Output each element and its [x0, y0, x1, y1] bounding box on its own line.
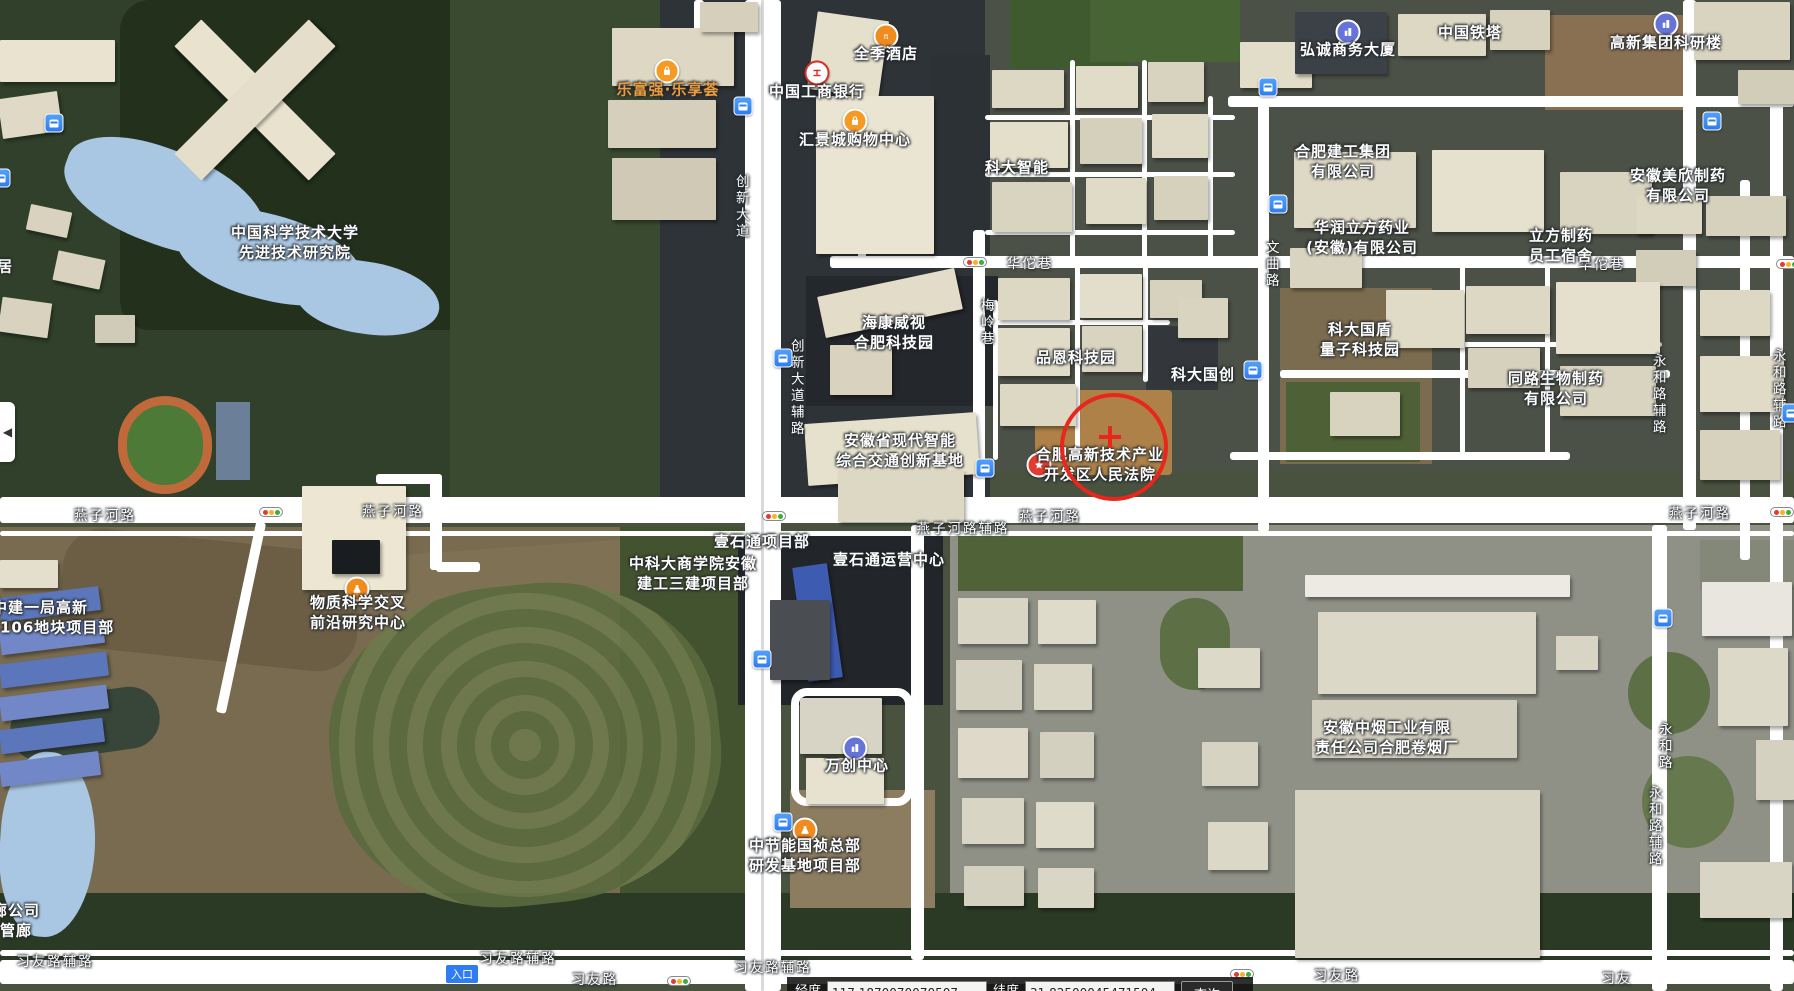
poi-label[interactable]: 合肥建工集团 有限公司	[1295, 143, 1391, 182]
crosshair-icon	[1099, 426, 1121, 448]
query-button[interactable]: 查询	[1181, 981, 1233, 991]
road-label: 华佗巷	[1007, 256, 1054, 274]
road-label: 习友路辅路	[734, 960, 812, 978]
poi-label[interactable]: 华润立方药业 (安徽)有限公司	[1306, 219, 1418, 258]
coordinate-bar: 经度 纬度 查询	[787, 977, 1253, 991]
entrance-badge: 入口	[445, 964, 479, 984]
bus-stop-icon[interactable]	[734, 97, 753, 116]
latitude-label: 纬度	[993, 981, 1019, 991]
poi-label[interactable]: 安徽省现代智能 综合交通创新基地	[836, 432, 964, 471]
poi-label[interactable]: 居	[0, 257, 13, 277]
poi-label[interactable]: 廊公司 管廊	[0, 902, 40, 941]
collapse-arrow-icon: ◀	[3, 425, 12, 439]
poi-label[interactable]: 壹石通运营中心	[833, 550, 945, 570]
poi-label[interactable]: 同路生物制药 有限公司	[1508, 370, 1604, 409]
road-label: 永和路辅路	[1648, 354, 1666, 437]
traffic-light-icon	[963, 257, 987, 267]
bus-stop-icon[interactable]	[774, 813, 793, 832]
poi-label[interactable]: 万创中心	[825, 756, 889, 776]
poi-label[interactable]: 乐富强·乐享荟	[617, 80, 720, 100]
bus-stop-icon[interactable]	[1703, 112, 1722, 131]
panel-collapse-tab[interactable]: ◀	[0, 402, 15, 462]
road-label: 习友	[1602, 971, 1633, 989]
road-label: 习友路辅路	[16, 954, 94, 972]
road-label: 永和路	[1654, 722, 1672, 772]
road-label: 习友路	[572, 972, 619, 990]
svg-text:π: π	[884, 32, 889, 41]
road-label: 燕子河路	[1019, 509, 1081, 527]
bus-stop-icon[interactable]	[0, 169, 11, 188]
bus-stop-icon[interactable]	[45, 114, 64, 133]
poi-label[interactable]: 科大智能	[985, 158, 1049, 178]
road-label: 永和路辅路	[1644, 786, 1662, 869]
poi-label[interactable]: 海康威视 合肥科技园	[854, 314, 934, 353]
bus-stop-icon[interactable]	[1269, 195, 1288, 214]
poi-label[interactable]: 中节能国祯总部 研发基地项目部	[749, 837, 861, 876]
poi-label[interactable]: 壹石通项目部	[714, 532, 810, 552]
longitude-label: 经度	[795, 981, 821, 991]
satellite-map[interactable]: 中国科学技术大学 先进技术研究院乐富强·乐享荟π全季酒店中国工商银行汇景城购物中…	[0, 0, 1794, 991]
road-label: 习友路	[1314, 968, 1361, 986]
poi-label[interactable]: 中国工商银行	[769, 82, 865, 102]
bus-stop-icon[interactable]	[774, 349, 793, 368]
road-label: 习友路辅路	[479, 951, 557, 969]
poi-label[interactable]: 中科大商学院安徽 建工三建项目部	[629, 555, 757, 594]
road-label: 燕子河路	[362, 504, 424, 522]
bus-stop-icon[interactable]	[1259, 78, 1278, 97]
poi-label[interactable]: 汇景城购物中心	[799, 130, 911, 150]
poi-label[interactable]: 中国科学技术大学 先进技术研究院	[231, 224, 359, 263]
poi-label[interactable]: 科大国创	[1171, 365, 1235, 385]
bus-stop-icon[interactable]	[1654, 609, 1673, 628]
poi-label[interactable]: 立方制药 员工宿舍	[1529, 227, 1593, 266]
bus-stop-icon[interactable]	[976, 459, 995, 478]
traffic-light-icon	[667, 976, 691, 986]
poi-label[interactable]: 弘诚商务大厦	[1300, 40, 1396, 60]
road-label: 燕子河路	[74, 508, 136, 526]
bus-stop-icon[interactable]	[1782, 404, 1794, 423]
poi-label[interactable]: 科大国盾 量子科技园	[1320, 321, 1400, 360]
bus-stop-icon[interactable]	[753, 650, 772, 669]
poi-label[interactable]: 全季酒店	[854, 44, 918, 64]
road-label: 梅岭巷	[976, 298, 994, 348]
poi-label[interactable]: 品恩科技园	[1036, 348, 1116, 368]
poi-label[interactable]: 安徽中烟工业有限 责任公司合肥卷烟厂	[1315, 719, 1459, 758]
road-label: 文曲路	[1261, 240, 1279, 290]
longitude-input[interactable]	[827, 981, 987, 991]
latitude-input[interactable]	[1025, 981, 1175, 991]
poi-label[interactable]: 高新集团科研楼	[1610, 33, 1722, 53]
poi-label[interactable]: 中建一局高新 202106地块项目部	[0, 599, 114, 638]
poi-label[interactable]: 中国铁塔	[1438, 23, 1502, 43]
poi-label[interactable]: 安徽美欣制药 有限公司	[1630, 167, 1726, 206]
bus-stop-icon[interactable]	[1244, 361, 1263, 380]
road-label: 燕子河路	[1669, 506, 1731, 524]
road-label: 燕子河路辅路	[917, 521, 1010, 539]
traffic-light-icon	[259, 507, 283, 517]
traffic-light-icon	[1776, 259, 1794, 269]
road-label: 创新大道	[731, 174, 749, 240]
traffic-light-icon	[1770, 507, 1794, 517]
traffic-light-icon	[762, 511, 786, 521]
poi-label[interactable]: 物质科学交叉 前沿研究中心	[310, 594, 406, 633]
